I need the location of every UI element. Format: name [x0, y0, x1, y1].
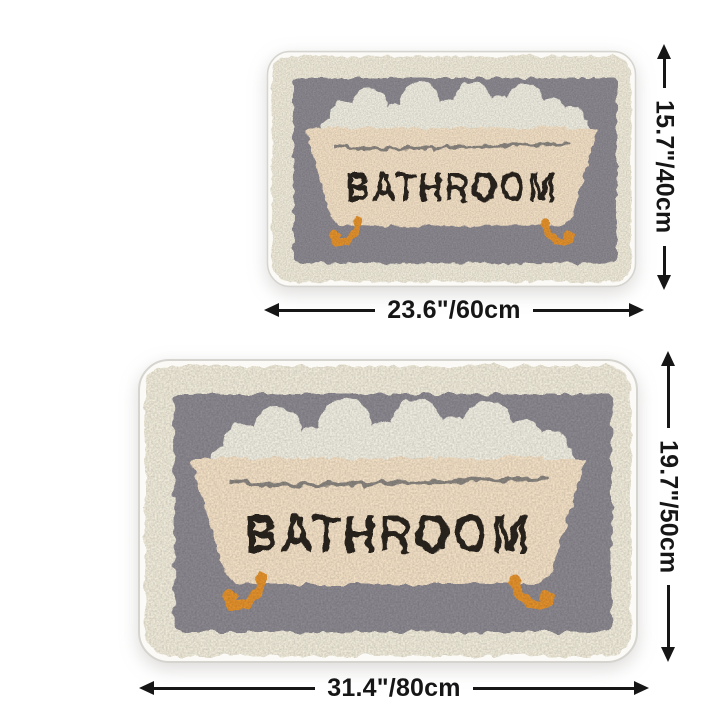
bath-mat-small [266, 50, 637, 288]
height-label-large: 19.7"/50cm [656, 440, 681, 573]
dimension-line [533, 309, 629, 312]
width-label-small: 23.6"/60cm [387, 298, 520, 323]
dimension-line [154, 687, 315, 690]
height-label-small: 15.7"/40cm [652, 100, 677, 233]
height-dimension-large: 19.7"/50cm [649, 351, 687, 662]
width-dimension-large: 31.4"/80cm [139, 672, 649, 704]
width-label-large: 31.4"/80cm [327, 676, 460, 701]
dimension-line [663, 246, 666, 275]
height-dimension-small: 15.7"/40cm [645, 44, 683, 290]
dimension-line [667, 585, 670, 647]
dimension-line [279, 309, 375, 312]
arrow-up-icon [661, 351, 675, 366]
dimension-line [473, 687, 634, 690]
arrow-left-icon [264, 303, 279, 317]
product-image: BATHROOM 15.7"/40cm 23.6"/60cm 19. [0, 0, 720, 720]
arrow-right-icon [629, 303, 644, 317]
dimension-line [663, 59, 666, 88]
arrow-down-icon [661, 647, 675, 662]
arrow-left-icon [139, 681, 154, 695]
bath-mat-large [137, 358, 639, 664]
width-dimension-small: 23.6"/60cm [264, 294, 644, 326]
arrow-up-icon [657, 44, 671, 59]
dimension-line [667, 366, 670, 428]
arrow-right-icon [634, 681, 649, 695]
arrow-down-icon [657, 275, 671, 290]
